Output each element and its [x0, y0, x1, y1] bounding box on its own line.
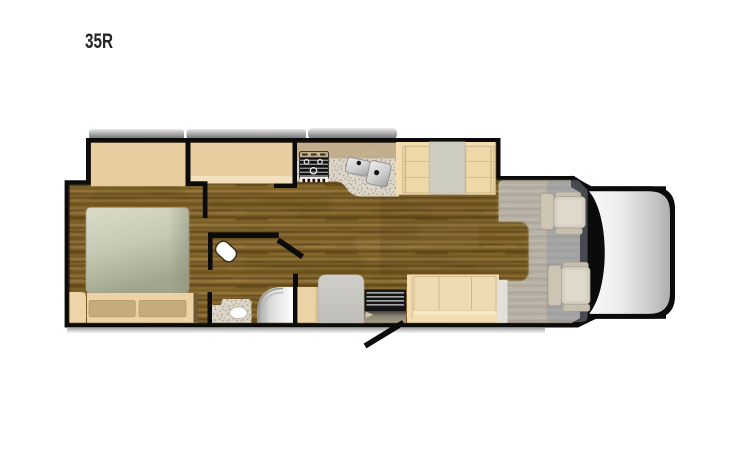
svg-text:35R: 35R — [85, 30, 113, 53]
